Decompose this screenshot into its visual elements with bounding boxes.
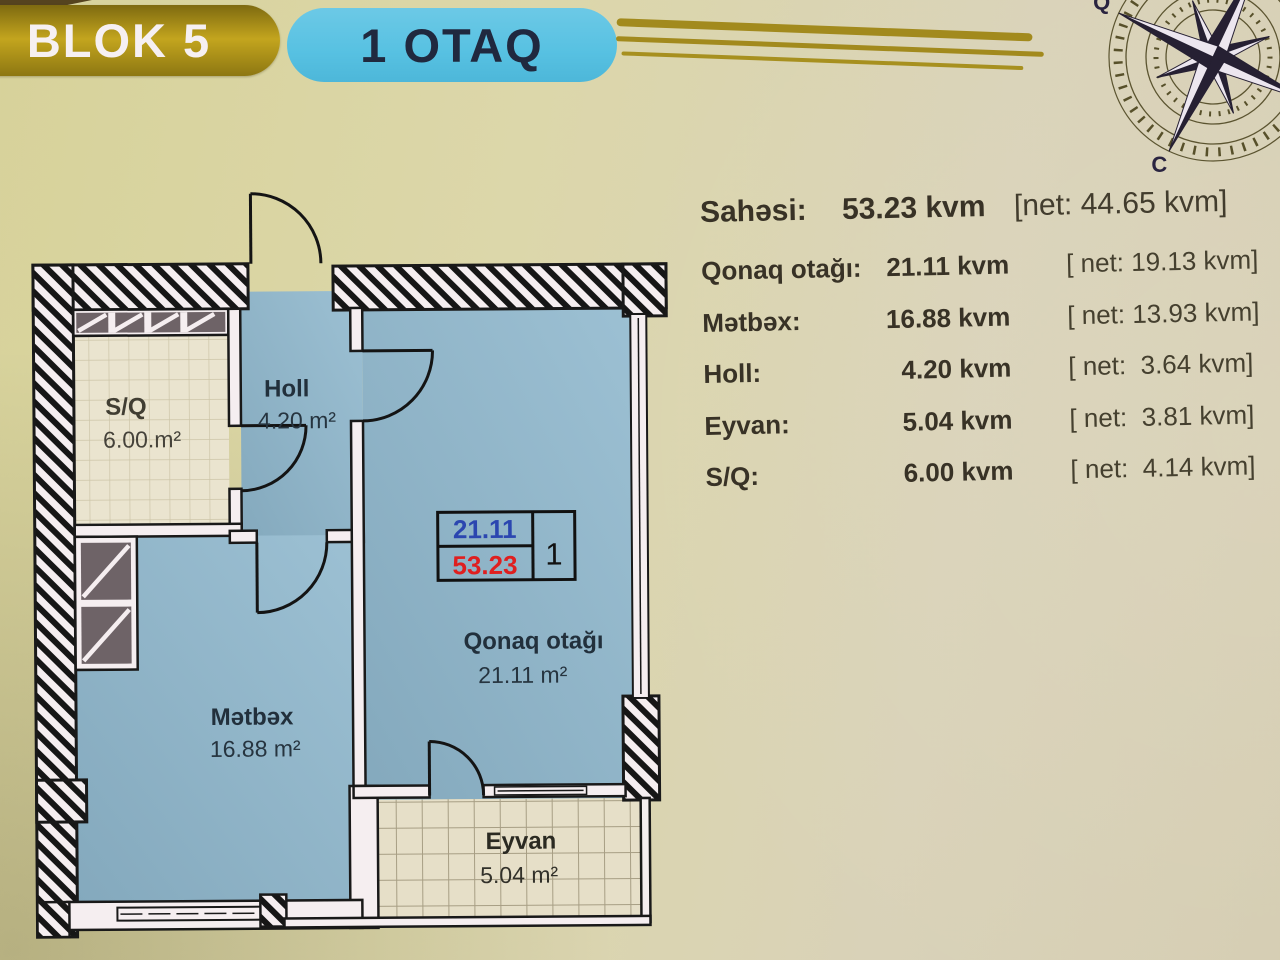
- row-net: [ net: 4.14 kvm]: [1070, 450, 1256, 485]
- total-area-net: [net: 44.65 kvm]: [1014, 185, 1228, 223]
- total-area-label: Sahəsi:: [700, 193, 843, 230]
- row-label: Holl:: [703, 355, 882, 390]
- row-net: [ net: 19.13 kvm]: [1066, 244, 1259, 279]
- balcony-rail-right: [641, 798, 651, 922]
- room-sq-floor: [73, 309, 230, 537]
- area-row: S/Q: 6.00 kvm [ net: 4.14 kvm]: [705, 450, 1280, 514]
- wall-holl-living-upper: [350, 308, 362, 351]
- label-living-area: 21.11 m²: [478, 662, 568, 689]
- compass-south-label: C: [1151, 152, 1167, 177]
- pier-right-bottom: [623, 696, 660, 800]
- row-value: 21.11 kvm: [879, 250, 1010, 284]
- floor-plan: 21.11 53.23 1 S/Q 6.00.m² Holl 4.20 m² Q…: [27, 176, 677, 955]
- total-area-value: 53.23 kvm: [842, 189, 1015, 227]
- label-kitchen-area: 16.88 m²: [210, 735, 301, 762]
- compass-rose: Q C: [1092, 0, 1280, 188]
- label-kitchen: Mətbəx: [211, 703, 295, 731]
- area-table: Qonaq otağı: 21.11 kvm [ net: 19.13 kvm]…: [701, 244, 1280, 513]
- wall-top-right: [333, 264, 666, 310]
- row-label: S/Q:: [705, 458, 884, 493]
- row-net: [ net: 3.81 kvm]: [1069, 399, 1255, 434]
- row-value: 16.88 kvm: [880, 301, 1011, 335]
- wall-sq-holl-lower: [229, 489, 241, 527]
- label-balcony-area: 5.04 m²: [480, 862, 558, 889]
- label-sq: S/Q: [105, 393, 147, 420]
- compass-star: [1092, 0, 1280, 188]
- total-area-line: Sahəsi: 53.23 kvm [net: 44.65 kvm]: [700, 184, 1276, 230]
- pier-top-right: [623, 264, 666, 316]
- unit-total-area: 53.23: [452, 550, 517, 580]
- room-type-badge: 1 OTAQ: [287, 8, 617, 82]
- wall-left: [33, 265, 78, 937]
- row-label: Mətbəx:: [702, 304, 881, 339]
- row-net: [ net: 3.64 kvm]: [1068, 347, 1254, 382]
- wall-balcony-left: [354, 785, 430, 798]
- wall-sq-holl-upper: [228, 309, 241, 426]
- pier-bottom-mid: [260, 894, 286, 926]
- pier-left-mid: [36, 780, 86, 822]
- room-type-label: 1 OTAQ: [360, 18, 543, 73]
- label-sq-area: 6.00.m²: [103, 426, 181, 453]
- compass-west-label: Q: [1093, 0, 1110, 14]
- block-badge: BLOK 5: [0, 5, 280, 76]
- compass-rings: [1092, 0, 1280, 188]
- row-net: [ net: 13.93 kvm]: [1067, 296, 1260, 331]
- wall-kitchen-living: [351, 421, 366, 790]
- label-holl-area: 4.20 m²: [258, 407, 336, 434]
- label-holl: Holl: [264, 375, 310, 402]
- row-value: 4.20 kvm: [881, 353, 1012, 387]
- decorative-gold-lines: [615, 18, 1044, 71]
- row-label: Qonaq otağı:: [701, 252, 880, 287]
- room-balcony-floor: [372, 798, 645, 918]
- wall-sq-bottom: [75, 524, 242, 537]
- row-value: 5.04 kvm: [882, 404, 1013, 438]
- block-badge-label: BLOK 5: [27, 13, 211, 68]
- row-label: Eyvan:: [704, 407, 883, 442]
- unit-number: 1: [545, 537, 562, 572]
- unit-net-area: 21.11: [453, 514, 517, 544]
- area-panel: Sahəsi: 53.23 kvm [net: 44.65 kvm] Qonaq…: [700, 184, 1280, 513]
- label-living: Qonaq otağı: [463, 627, 603, 655]
- balcony-rail-bottom: [284, 916, 650, 928]
- entrance-door: [250, 193, 320, 263]
- pier-bottom-left: [37, 902, 69, 937]
- label-balcony: Eyvan: [485, 828, 556, 855]
- wall-holl-kitchen-left: [230, 531, 257, 543]
- row-value: 6.00 kvm: [883, 456, 1014, 490]
